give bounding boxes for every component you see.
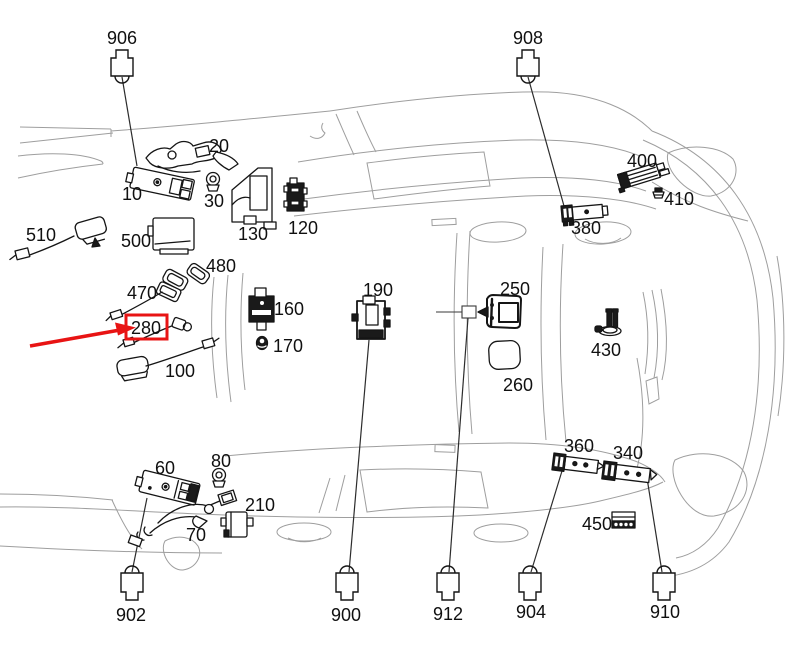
leader-line-908 <box>528 77 564 206</box>
part-label-20: 20 <box>209 136 229 156</box>
part-icon-430 <box>595 309 621 336</box>
part-label-80: 80 <box>211 451 231 471</box>
part-label-30: 30 <box>204 191 224 211</box>
part-icon-510 <box>8 216 109 262</box>
part-label-340: 340 <box>613 443 643 463</box>
part-icon-160 <box>249 288 274 330</box>
part-label-380: 380 <box>571 218 601 238</box>
connector-label-908: 908 <box>513 28 543 48</box>
direction-arrow-icon <box>478 307 488 317</box>
connector-icon-910 <box>653 566 675 600</box>
part-icon-250 <box>478 295 521 328</box>
part-label-170: 170 <box>273 336 303 356</box>
connector-icon-900 <box>336 566 358 600</box>
diagram-page: 10 20 30 60 70 80 100 120 130 160 170 19… <box>0 0 811 652</box>
parts-location-diagram: 10 20 30 60 70 80 100 120 130 160 170 19… <box>0 0 811 652</box>
connector-icon-904 <box>519 566 541 600</box>
part-label-480: 480 <box>206 256 236 276</box>
part-label-260: 260 <box>503 375 533 395</box>
part-label-250: 250 <box>500 279 530 299</box>
part-label-160: 160 <box>274 299 304 319</box>
part-icon-190 <box>352 296 390 339</box>
part-label-400: 400 <box>627 151 657 171</box>
part-label-500: 500 <box>121 231 151 251</box>
part-icon-130 <box>232 168 276 229</box>
highlight-arrow-shaft <box>30 330 120 346</box>
ref-square-912 <box>462 306 476 318</box>
connector-label-904: 904 <box>516 602 546 622</box>
connector-label-902: 902 <box>116 605 146 625</box>
part-label-120: 120 <box>288 218 318 238</box>
part-icon-340 <box>602 461 658 485</box>
leader-line-910 <box>647 478 662 572</box>
connector-icon-912 <box>437 566 459 600</box>
part-label-70: 70 <box>186 525 206 545</box>
part-label-510: 510 <box>26 225 56 245</box>
leader-line-906 <box>122 77 137 166</box>
part-icon-80 <box>213 469 226 488</box>
connector-label-900: 900 <box>331 605 361 625</box>
part-label-360: 360 <box>564 436 594 456</box>
part-label-280: 280 <box>131 318 161 338</box>
part-icon-450 <box>612 512 635 528</box>
part-icons <box>8 142 670 547</box>
part-icon-410 <box>653 188 664 198</box>
part-label-100: 100 <box>165 361 195 381</box>
part-label-410: 410 <box>664 189 694 209</box>
part-label-210: 210 <box>245 495 275 515</box>
part-label-430: 430 <box>591 340 621 360</box>
part-label-60: 60 <box>155 458 175 478</box>
part-icon-30 <box>207 173 220 192</box>
connector-label-912: 912 <box>433 604 463 624</box>
leader-line-904 <box>531 471 562 572</box>
leader-line-900 <box>349 340 369 572</box>
part-label-10: 10 <box>122 184 142 204</box>
part-icon-120 <box>284 178 307 211</box>
part-icon-170 <box>257 337 268 350</box>
leader-line-902 <box>132 498 147 572</box>
part-icon-500 <box>148 218 194 254</box>
part-label-130: 130 <box>238 224 268 244</box>
part-icon-360 <box>552 453 605 476</box>
connector-label-906: 906 <box>107 28 137 48</box>
car-outline <box>0 92 784 577</box>
part-label-190: 190 <box>363 280 393 300</box>
connector-label-910: 910 <box>650 602 680 622</box>
part-icon-260 <box>488 340 520 370</box>
part-label-470: 470 <box>127 283 157 303</box>
part-label-450: 450 <box>582 514 612 534</box>
